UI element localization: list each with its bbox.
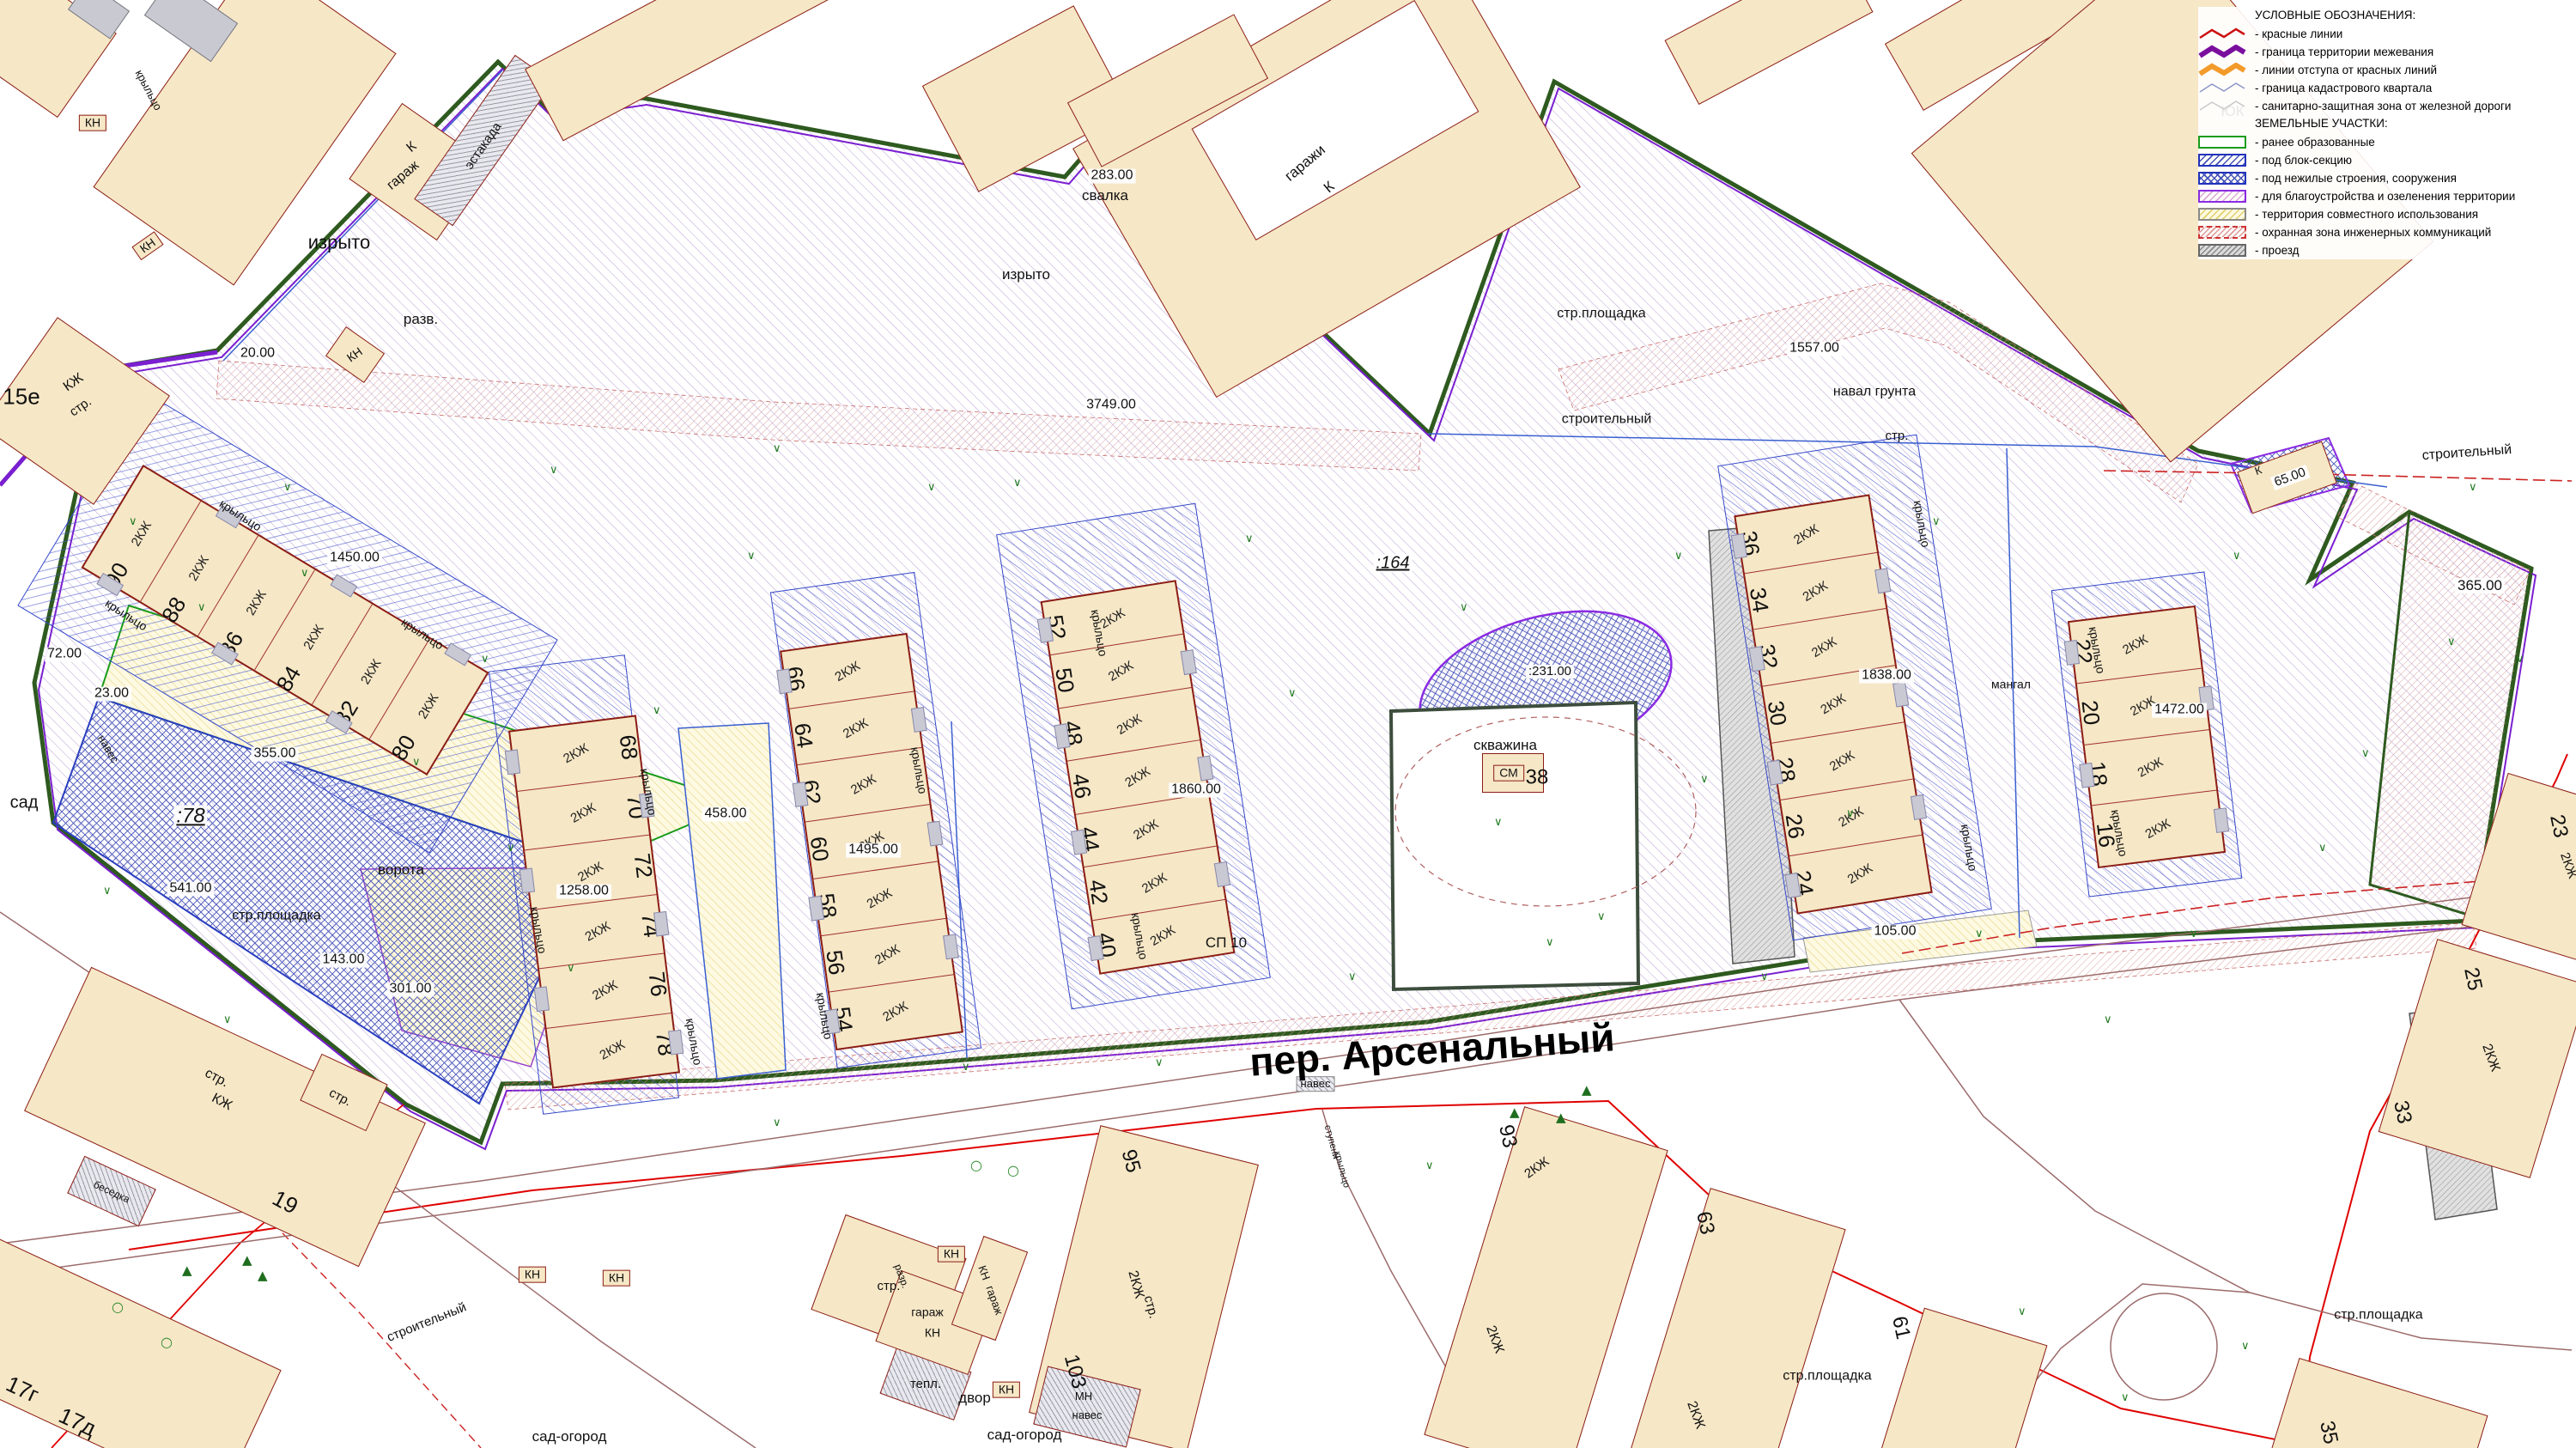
grass-symbol: ∨ (962, 1061, 970, 1074)
legend-item-label: - санитарно-защитная зона от железной до… (2255, 100, 2511, 113)
spruce-tree-icon: ▲ (258, 1268, 268, 1283)
house-type-label: 2КЖ (880, 999, 910, 1025)
house-type-label: 2КЖ (186, 553, 213, 583)
grass-symbol: ∨ (1846, 807, 1855, 820)
map-label: гараж (911, 1306, 944, 1319)
grass-symbol: ∨ (2361, 747, 2370, 760)
house-type-label: 2КЖ (2136, 755, 2166, 781)
house-number: 50 (1049, 666, 1079, 694)
house-type-label: 2КЖ (1818, 691, 1848, 718)
legend-item: - под блок-секцию (2198, 151, 2567, 169)
swatch (2198, 208, 2246, 221)
grass-symbol: ∨ (653, 704, 661, 717)
legend-item: - для благоустройства и озеленения терри… (2198, 187, 2567, 205)
legend-swatch-green (2198, 136, 2248, 149)
map-label: 1472.00 (2152, 703, 2207, 718)
legend-line-symbol (2198, 27, 2248, 42)
grass-symbol: ∨ (1700, 773, 1709, 786)
house-type-label: 2КЖ (568, 800, 598, 826)
legend-item: - граница кадастрового квартала (2198, 79, 2567, 97)
house-number: 26 (1780, 812, 1810, 841)
house-type-label: 2КЖ (301, 622, 327, 652)
house-type-label: 2КЖ (848, 772, 878, 798)
map-label: стр.площадка (232, 910, 320, 924)
house-number: 56 (820, 948, 850, 976)
legend-line-symbol (2198, 45, 2248, 60)
map-label: стр.площадка (1783, 1370, 1871, 1384)
legend-item-label: - для благоустройства и озеленения терри… (2255, 190, 2515, 203)
legend-item-label: - территория совместного использования (2255, 208, 2478, 221)
map-label: 25 (2460, 965, 2486, 992)
grass-symbol: ∨ (129, 515, 137, 528)
cadastral-map: 902КЖ882КЖ862КЖ842КЖ822КЖ802КЖ682КЖ702КЖ… (0, 0, 2576, 1448)
map-label: стр. (878, 1280, 901, 1293)
map-label: 35 (2316, 1419, 2342, 1445)
house-type-label: 2КЖ (583, 919, 613, 945)
map-label: 61 (1888, 1314, 1914, 1341)
house-type-label: 2КЖ (1131, 817, 1161, 843)
grass-symbol: ∨ (1245, 532, 1254, 545)
legend-swatch-purple (2198, 190, 2248, 203)
grass-symbol: ∨ (2447, 636, 2456, 648)
grass-symbol: ∨ (2233, 550, 2241, 563)
porch (505, 749, 520, 775)
spruce-tree-icon: ▲ (1582, 1082, 1592, 1098)
house-type-label: 2КЖ (1800, 578, 1830, 605)
legend-section-parcels: ЗЕМЕЛЬНЫЕ УЧАСТКИ: (2255, 117, 2567, 130)
grass-symbol: ∨ (2104, 1013, 2112, 1026)
grass-symbol: ∨ (481, 653, 489, 666)
legend-item: - красные линии (2198, 25, 2567, 43)
grass-symbol: ∨ (2318, 842, 2327, 855)
map-label: 458.00 (702, 807, 750, 822)
map-label: строительный (1562, 413, 1652, 428)
map-label: 38 (1526, 766, 1549, 788)
house-type-label: 2КЖ (1122, 764, 1152, 791)
grass-symbol: ∨ (2469, 481, 2477, 494)
spruce-tree-icon: ▲ (1510, 1104, 1520, 1120)
map-label: 355.00 (252, 747, 299, 762)
grass-symbol: ∨ (1494, 816, 1503, 829)
legend-swatch-blue (2198, 154, 2248, 167)
legend-line-symbol (2198, 99, 2248, 114)
map-label: 3749.00 (1084, 399, 1139, 413)
map-label: 23.00 (92, 687, 131, 702)
grass-symbol: ∨ (2121, 1391, 2129, 1404)
legend-item-label: - под нежилые строения, сооружения (2255, 172, 2457, 185)
legend-item-label: - линии отступа от красных линий (2255, 64, 2437, 76)
map-label: навал грунта (1833, 386, 1916, 400)
grass-symbol: ∨ (1348, 970, 1357, 983)
roundabout (2111, 1293, 2217, 1400)
map-label: КН (603, 1270, 630, 1287)
spruce-tree-icon: ▲ (242, 1252, 252, 1268)
grass-symbol: ∨ (223, 1013, 232, 1026)
grass-symbol: ∨ (747, 550, 756, 563)
house-number: 76 (643, 970, 672, 998)
house-type-label: 2КЖ (872, 942, 902, 968)
legend-parcel-items: - ранее образованные- под блок-секцию- п… (2198, 133, 2567, 259)
map-label: двор (958, 1390, 991, 1406)
map-label: 283.00 (1089, 169, 1136, 184)
map-label: 1495.00 (846, 843, 901, 858)
grass-symbol: ∨ (2516, 653, 2524, 666)
map-label: 1557.00 (1787, 342, 1842, 356)
house-type-label: 2КЖ (1845, 861, 1875, 887)
grass-symbol: ∨ (1460, 601, 1468, 614)
map-label: 365.00 (2455, 578, 2505, 593)
legend-item: - под нежилые строения, сооружения (2198, 169, 2567, 187)
grass-symbol: ∨ (412, 756, 421, 769)
house-number: 42 (1083, 878, 1113, 906)
house-type-label: 2КЖ (1809, 635, 1839, 661)
porch (2214, 808, 2229, 834)
legend-line-items: - красные линии- граница территории меже… (2198, 25, 2567, 115)
tree-icon: ○ (1007, 1162, 1019, 1178)
map-label: сад-огород (532, 1429, 607, 1445)
house-type-label: 2КЖ (841, 715, 871, 741)
spruce-tree-icon: ▲ (182, 1262, 192, 1278)
porch (2064, 640, 2080, 666)
legend-item: - линии отступа от красных линий (2198, 61, 2567, 79)
swatch (2198, 226, 2246, 239)
house-type-label: 2КЖ (358, 656, 385, 686)
house-type-label: 2КЖ (1106, 658, 1136, 684)
house-type-label: 2КЖ (575, 860, 605, 885)
grass-symbol: ∨ (1674, 550, 1683, 563)
map-label: КН (925, 1327, 940, 1340)
grass-symbol: ∨ (1288, 687, 1297, 700)
house-type-label: 2КЖ (598, 1037, 628, 1063)
map-label: навес (1072, 1409, 1103, 1421)
map-label: сад-огород (987, 1427, 1062, 1443)
map-label: КН (938, 1246, 965, 1262)
grass-symbol: ∨ (1425, 1159, 1434, 1172)
grass-symbol: ∨ (1932, 515, 1941, 528)
house-type-label: 2КЖ (1115, 711, 1145, 738)
grass-symbol: ∨ (1975, 928, 1984, 940)
house-number: 34 (1744, 586, 1774, 614)
legend-item-label: - под блок-секцию (2255, 154, 2352, 167)
grass-symbol: ∨ (1013, 477, 1022, 490)
legend-item-label: - ранее образованные (2255, 136, 2375, 149)
map-label: скважина (1473, 738, 1537, 753)
house-type-label: 2КЖ (2142, 816, 2172, 842)
grass-symbol: ∨ (1597, 910, 1606, 923)
tree-icon: ○ (161, 1334, 173, 1350)
map-label: 105.00 (1872, 925, 1919, 940)
grass-symbol: ∨ (773, 1116, 781, 1129)
legend-swatch-red (2198, 226, 2248, 239)
swatch (2198, 136, 2246, 149)
map-label: 541.00 (167, 882, 215, 897)
swatch (2198, 190, 2246, 203)
map-label: 33 (2390, 1098, 2415, 1125)
legend-title: УСЛОВНЫЕ ОБОЗНАЧЕНИЯ: (2255, 9, 2567, 21)
map-label: 23 (2546, 812, 2572, 839)
house-type-label: 2КЖ (590, 978, 620, 1004)
map-label: 20.00 (238, 347, 277, 362)
legend-item-label: - красные линии (2255, 27, 2342, 40)
map-label: 72.00 (45, 648, 84, 662)
map-label: 143.00 (320, 953, 368, 968)
grass-symbol: ∨ (567, 962, 575, 975)
house-number: 72 (629, 852, 658, 879)
legend-swatch-cross (2198, 172, 2248, 185)
grass-symbol: ∨ (507, 842, 515, 855)
legend-item: - территория совместного использования (2198, 205, 2567, 223)
map-label: тепл. (910, 1378, 941, 1391)
map-label: МН (1075, 1390, 1092, 1402)
map-label: КН (79, 115, 106, 131)
legend-item-label: - проезд (2255, 244, 2300, 257)
grass-symbol: ∨ (1155, 1056, 1163, 1069)
map-label: СМ (1493, 765, 1524, 782)
map-label: 15е (3, 385, 39, 408)
map-label: 1258.00 (556, 885, 611, 899)
house-type-label: 2КЖ (243, 587, 270, 618)
grass-symbol: ∨ (2018, 1305, 2026, 1318)
map-label: КН (993, 1382, 1020, 1398)
house-type-label: 2КЖ (1139, 870, 1170, 897)
grass-symbol: ∨ (773, 442, 781, 455)
map-legend: УСЛОВНЫЕ ОБОЗНАЧЕНИЯ: - красные линии- г… (2198, 7, 2567, 259)
map-label: свалка (1082, 188, 1128, 204)
map-label: 1450.00 (327, 551, 382, 566)
spruce-tree-icon: ▲ (1556, 1110, 1566, 1125)
map-label: стр.площадка (1557, 307, 1645, 322)
grass-symbol: ∨ (927, 481, 936, 494)
grass-symbol: ∨ (197, 601, 206, 614)
house-type-label: 2КЖ (865, 885, 895, 911)
map-label: сад (10, 794, 39, 812)
map-label: 1860.00 (1169, 783, 1224, 798)
map-label: 93 (1495, 1123, 1521, 1149)
legend-item-label: - граница территории межевания (2255, 46, 2433, 58)
grass-symbol: ∨ (550, 464, 558, 477)
legend-item-label: - граница кадастрового квартала (2255, 82, 2432, 94)
map-label: :231.00 (1526, 665, 1574, 678)
legend-line-symbol (2198, 63, 2248, 78)
porch (653, 911, 669, 937)
map-label: стр. (1886, 429, 1909, 443)
legend-swatch-yellow (2198, 208, 2248, 221)
house-type-label: 2КЖ (1791, 521, 1821, 548)
map-label: изрыто (1002, 267, 1050, 283)
house-type-label: 2КЖ (416, 691, 442, 721)
porch (534, 986, 550, 1012)
legend-line-symbol (2198, 81, 2248, 96)
tree-icon: ○ (970, 1157, 982, 1173)
map-label: :78 (173, 805, 207, 826)
grass-symbol: ∨ (2241, 1340, 2250, 1353)
swatch (2198, 154, 2246, 167)
grass-symbol: ∨ (301, 567, 309, 580)
legend-swatch-gray (2198, 244, 2248, 257)
swatch (2198, 172, 2246, 185)
house-type-label: 2КЖ (832, 659, 862, 684)
map-label: 63 (1692, 1209, 1718, 1236)
grass-symbol: ∨ (2190, 928, 2198, 940)
legend-item: - ранее образованные (2198, 133, 2567, 151)
map-label: 1838.00 (1859, 669, 1914, 684)
map-label: :164 (1374, 555, 1413, 573)
porch (2079, 763, 2094, 788)
legend-item-label: - охранная зона инженерных коммуникаций (2255, 226, 2491, 239)
legend-item: - санитарно-защитная зона от железной до… (2198, 97, 2567, 115)
map-label: ворота (378, 862, 424, 878)
house-type-label: 2КЖ (1148, 923, 1178, 950)
house-number: 64 (788, 721, 818, 750)
porch (519, 867, 535, 893)
map-label: мангал (1991, 678, 2031, 691)
legend-item: - охранная зона инженерных коммуникаций (2198, 223, 2567, 241)
map-label: КН (519, 1267, 546, 1283)
map-label: разв. (404, 312, 438, 327)
grass-symbol: ∨ (283, 481, 292, 494)
house-type-label: 2КЖ (1827, 748, 1857, 775)
grass-symbol: ∨ (103, 885, 112, 897)
house-number: 68 (614, 733, 643, 761)
legend-item: - проезд (2198, 241, 2567, 259)
map-label: 301.00 (387, 983, 434, 997)
grass-symbol: ∨ (1546, 936, 1554, 949)
house-type-label: 2КЖ (2120, 632, 2150, 658)
house-number: 30 (1762, 699, 1792, 727)
house-number: 46 (1066, 772, 1097, 800)
map-label: стр.площадка (2334, 1309, 2422, 1323)
map-label: СП 10 (1206, 935, 1247, 951)
house-number: 60 (805, 835, 835, 863)
porch (668, 1030, 683, 1056)
grass-symbol: ∨ (1760, 970, 1769, 983)
swatch (2198, 244, 2246, 257)
house-type-label: 2КЖ (561, 741, 591, 767)
tree-icon: ○ (112, 1299, 124, 1315)
house-number: 20 (2075, 699, 2105, 727)
legend-item: - граница территории межевания (2198, 43, 2567, 61)
map-label: изрыто (308, 232, 371, 252)
